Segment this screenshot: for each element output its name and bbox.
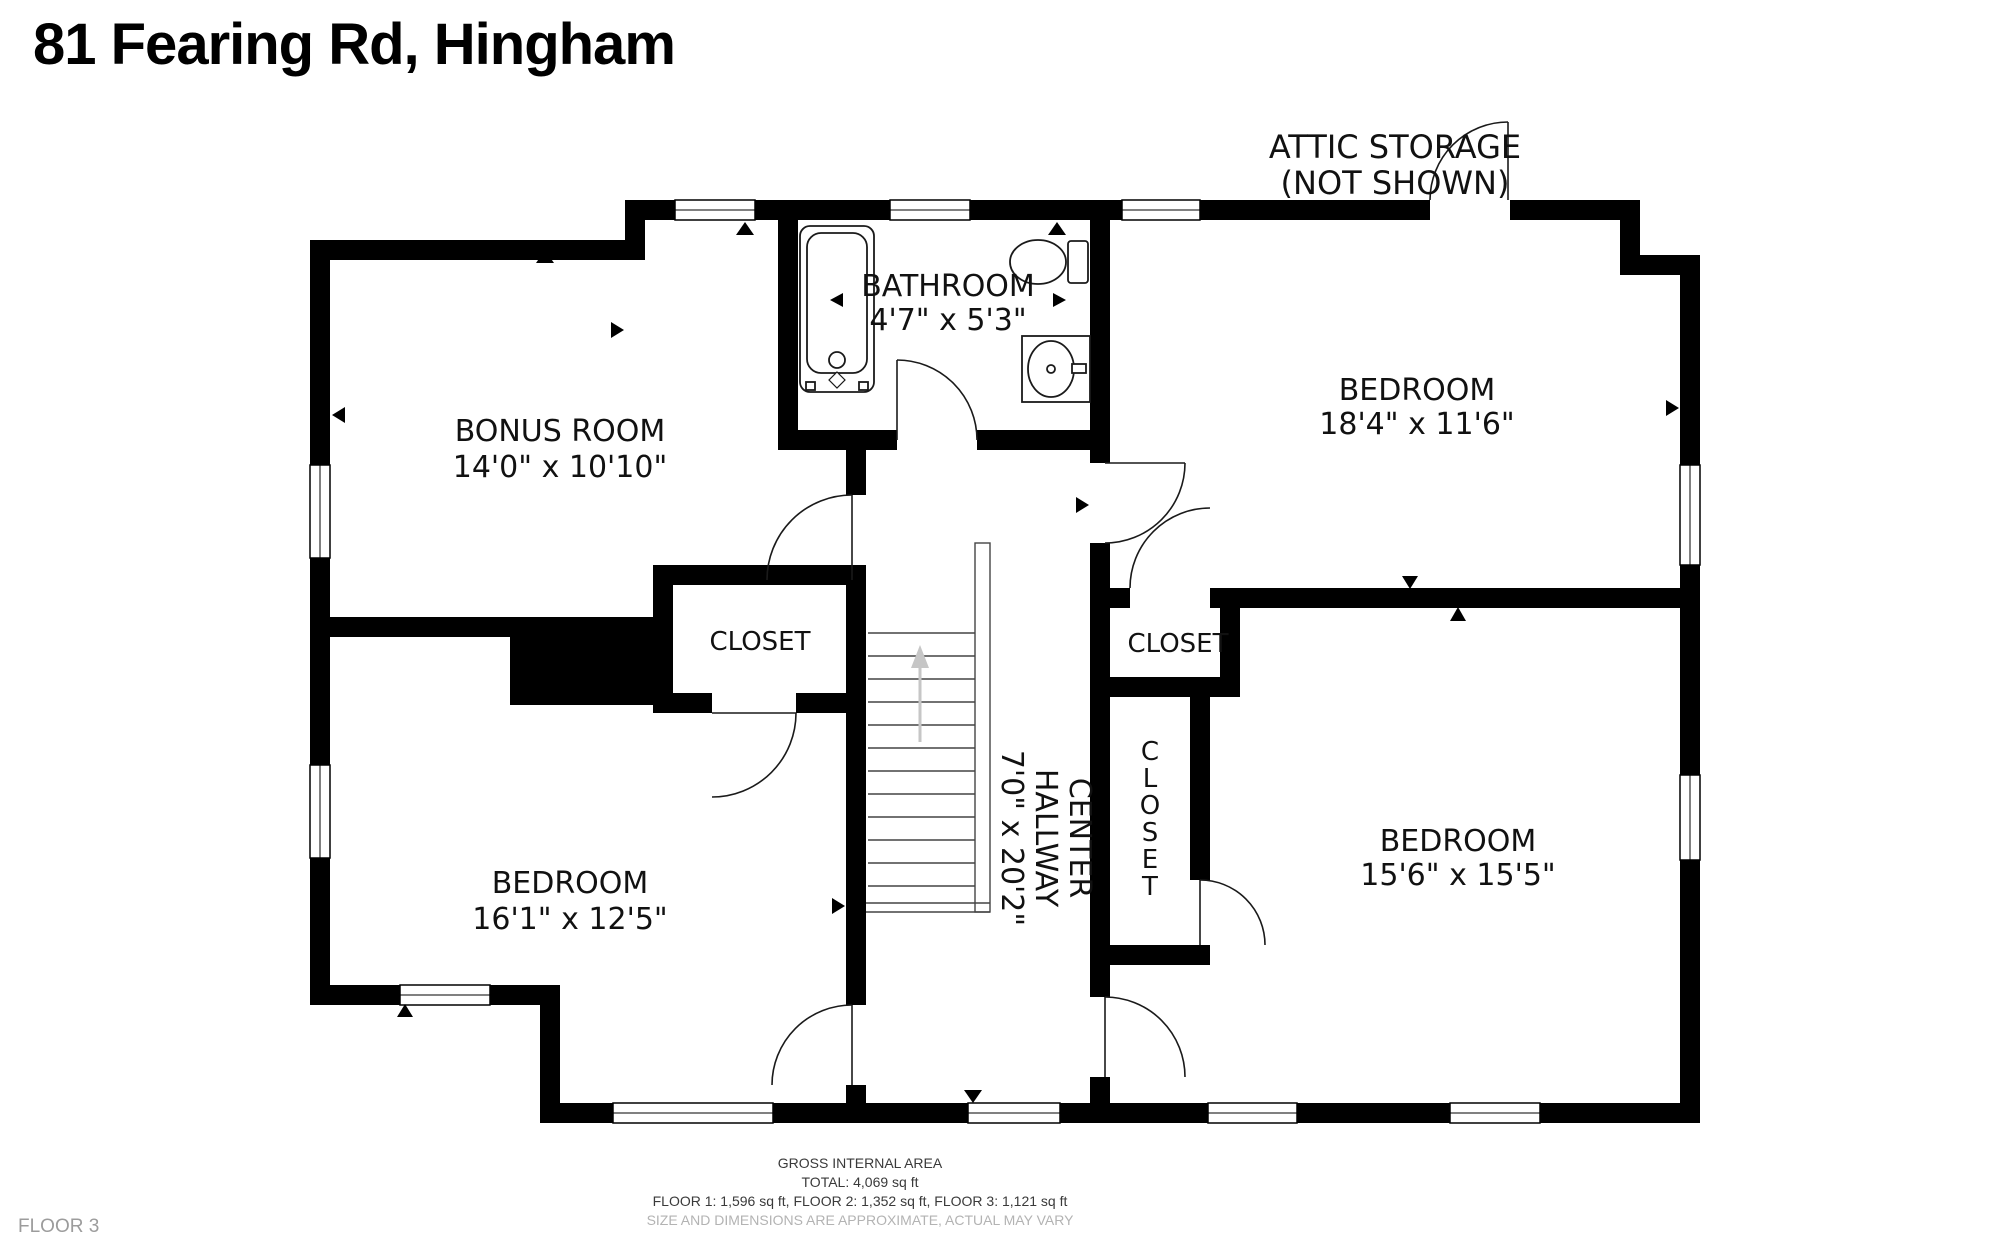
marker-arrow [964,1090,982,1103]
stair-treads [866,633,990,912]
marker-arrow [1076,497,1089,513]
room-name: BEDROOM [1339,373,1496,408]
vertical-closet-door [1200,880,1265,945]
staircase [866,543,990,912]
attic-note-line2: (NOT SHOWN) [1281,164,1510,202]
wall-segment [1620,200,1640,275]
bathtub [800,226,874,392]
window [1680,775,1700,860]
marker-arrow [1402,576,1418,589]
closet-letter: O [1140,791,1160,821]
window [400,985,490,1005]
sink [1022,336,1090,402]
stair-rail [975,543,990,912]
wall-segment [1110,588,1130,608]
footer-floors: FLOOR 1: 1,596 sq ft, FLOOR 2: 1,352 sq … [653,1193,1068,1209]
attic-note-line1: ATTIC STORAGE [1269,128,1521,166]
marker-arrow [611,322,624,338]
wall-segment [653,565,866,585]
room-label-bedroom-bottom-left: BEDROOM 16'1" x 12'5" [472,866,667,937]
window [1450,1103,1540,1123]
wall-segment [1090,1077,1110,1103]
marker-arrow [1666,400,1679,416]
floorplan-page: 81 Fearing Rd, Hingham ATTIC STORAGE (NO… [0,0,2000,1255]
wall-segment [1090,945,1210,965]
room-label-bonus: BONUS ROOM 14'0" x 10'10" [453,414,668,485]
marker-arrow [1053,293,1066,307]
wall-chase-block [510,617,655,705]
closet-letter: E [1142,845,1158,875]
closet-letter: C [1141,737,1159,767]
right-closet-door [1130,508,1210,588]
wall-segment [653,565,673,713]
wall-segment [1090,543,1110,997]
marker-arrow [1048,222,1066,235]
marker-arrow [736,222,754,235]
footer-disclaimer: SIZE AND DIMENSIONS ARE APPROXIMATE, ACT… [647,1212,1075,1228]
closet-left-label: CLOSET [710,627,811,657]
room-name: BEDROOM [492,866,649,901]
window [968,1103,1060,1123]
walls [310,200,1700,1123]
closet-letter: S [1142,818,1159,848]
footer-total: TOTAL: 4,069 sq ft [802,1174,919,1190]
wall-segment [653,693,712,713]
room-label-bedroom-bottom-right: BEDROOM 15'6" x 15'5" [1360,824,1555,893]
closet-letter: T [1141,872,1158,902]
bedroom-top-right-door [1105,463,1185,543]
room-dims: 14'0" x 10'10" [453,450,668,485]
marker-arrow [832,898,845,914]
wall-segment [1210,588,1680,608]
window [890,200,970,220]
closet-vertical-label: C L O S E T [1140,737,1160,902]
page-title: 81 Fearing Rd, Hingham [33,12,675,77]
wall-segment [1090,220,1110,463]
footer: GROSS INTERNAL AREA TOTAL: 4,069 sq ft F… [647,1155,1075,1228]
room-dims: 15'6" x 15'5" [1360,858,1555,893]
marker-arrow [397,1004,413,1017]
window [675,200,755,220]
room-dims: 7'0" x 20'2" [994,750,1029,926]
floorplan-canvas: 81 Fearing Rd, Hingham ATTIC STORAGE (NO… [0,0,2000,1255]
wall-segment [846,580,866,1005]
room-name: BEDROOM [1380,824,1537,859]
wall-segment [625,200,645,260]
bathroom-door [897,360,977,440]
closet-right-label: CLOSET [1128,629,1229,659]
wall-segment [310,240,645,260]
room-name: BONUS ROOM [455,414,666,449]
bedroom-bottom-left-door [772,1005,852,1085]
marker-arrow [332,407,345,423]
room-dims: 18'4" x 11'6" [1319,407,1514,442]
window [1680,465,1700,565]
bedroom-bottom-right-door [1105,997,1185,1077]
room-label-hallway: CENTER HALLWAY 7'0" x 20'2" [994,750,1097,926]
room-name: HALLWAY [1028,769,1063,908]
wall-segment [778,200,798,450]
wall-segment [310,617,510,637]
footer-gross-area: GROSS INTERNAL AREA [778,1155,943,1171]
room-label-bedroom-top-right: BEDROOM 18'4" x 11'6" [1319,373,1514,442]
attic-note: ATTIC STORAGE (NOT SHOWN) [1269,128,1521,202]
wall-segment [1110,677,1240,697]
window [1122,200,1200,220]
window [310,765,330,858]
left-closet-door [712,713,796,797]
closet-letter: L [1143,764,1158,794]
room-name: CENTER [1062,778,1097,898]
stair-up-arrow [911,645,929,742]
window [1208,1103,1297,1123]
floor-label: FLOOR 3 [18,1216,99,1237]
window [310,465,330,558]
wall-segment [1190,697,1210,880]
room-name: BATHROOM [861,269,1035,304]
wall-segment [778,430,897,450]
room-label-bathroom: BATHROOM 4'7" x 5'3" [861,269,1035,338]
wall-segment [846,450,866,495]
window [613,1103,773,1123]
room-dims: 16'1" x 12'5" [472,902,667,937]
wall-segment [1680,255,1700,1123]
room-dims: 4'7" x 5'3" [869,303,1026,338]
marker-arrow [1450,607,1466,621]
